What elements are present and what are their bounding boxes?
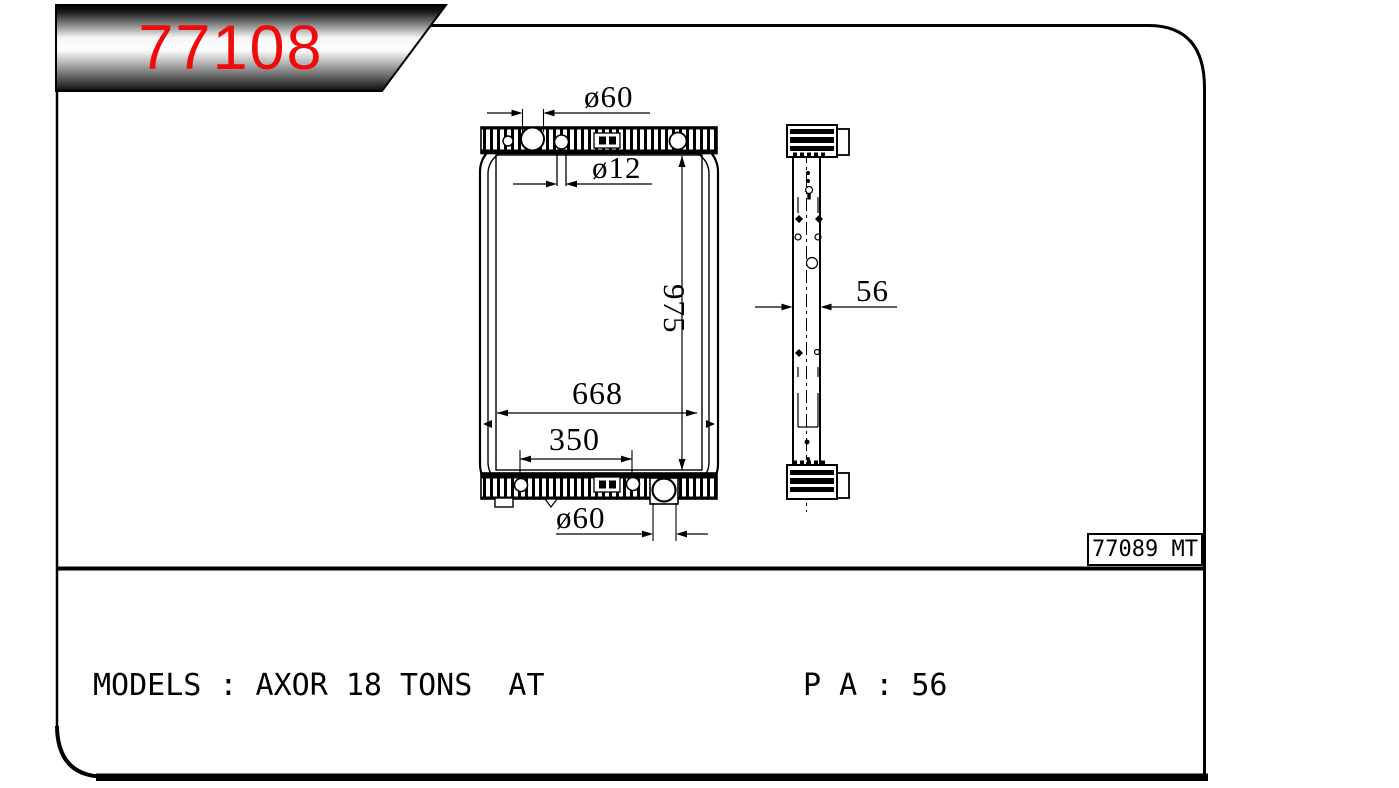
dim-height-label: 975 xyxy=(657,284,692,334)
part-number-banner: 77108 xyxy=(56,5,446,91)
spec-list-left: MODELS : AXOR 18 TONS AT CORE SIZE : 975… xyxy=(93,586,545,788)
spec-models: MODELS : AXOR 18 TONS AT xyxy=(93,666,545,706)
dim-top-port-label: ø60 xyxy=(584,79,634,114)
bottom-outlet-port xyxy=(653,479,676,502)
side-bottom-cap xyxy=(787,461,849,500)
dim-width-label: 668 xyxy=(572,375,623,411)
part-number: 77108 xyxy=(138,13,323,83)
ref-code: 77089 MT xyxy=(1092,537,1198,562)
section-divider xyxy=(57,567,1205,571)
mount-foot xyxy=(495,498,513,507)
spec-list-right: P A : 56 DPI : OEM : 9405000703 NISSENS:… xyxy=(803,586,1092,788)
dim-bottom-port-label: ø60 xyxy=(556,500,606,535)
side-view xyxy=(787,125,849,512)
top-inlet-port xyxy=(521,128,544,151)
spec-pa: P A : 56 xyxy=(803,666,1092,706)
catalog-page: 77108 ® TONGSHI xyxy=(0,0,1399,788)
side-top-cap xyxy=(787,125,849,157)
ref-code-box: 77089 MT xyxy=(1087,533,1203,566)
dim-mount-span-label: 350 xyxy=(549,421,600,457)
dim-depth-label: 56 xyxy=(856,273,889,308)
dim-pipe-label: ø12 xyxy=(592,150,642,185)
